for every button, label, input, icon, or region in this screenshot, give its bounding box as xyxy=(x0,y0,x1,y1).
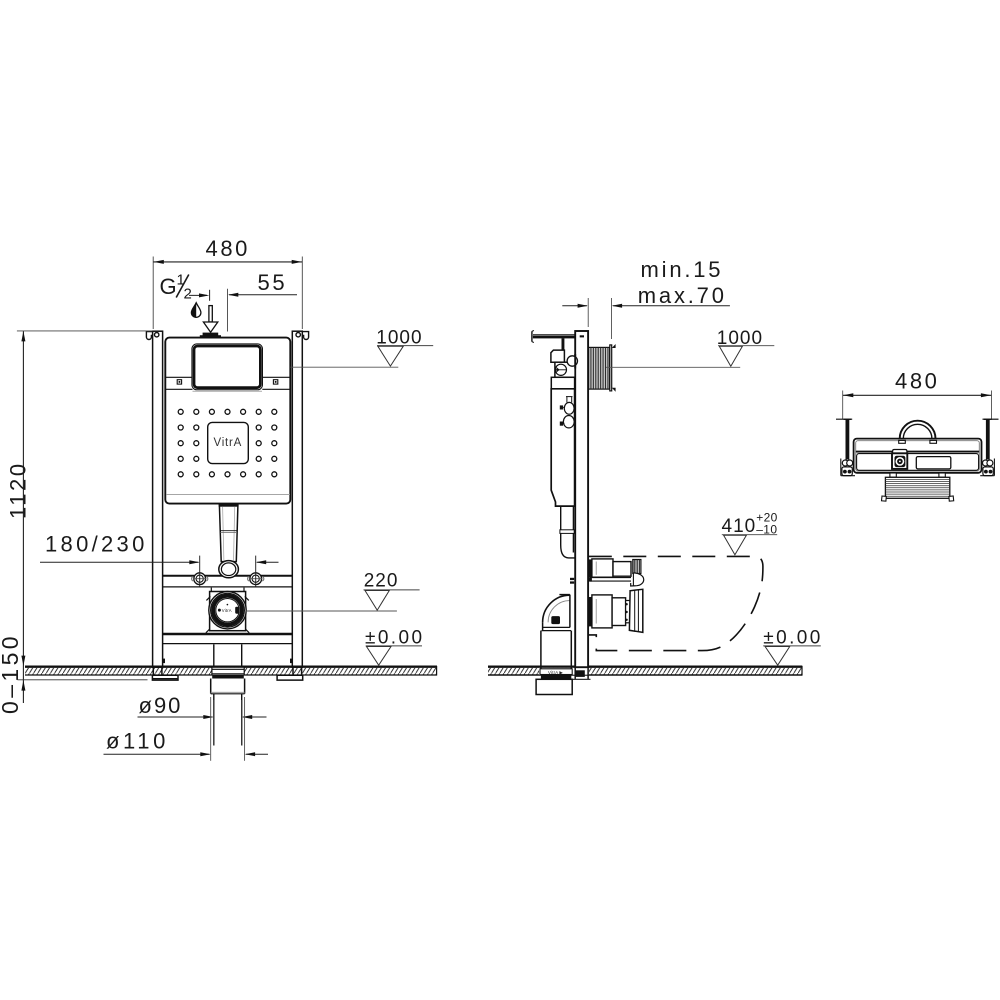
svg-text:410: 410 xyxy=(722,516,757,537)
svg-text:ø90: ø90 xyxy=(139,693,183,718)
svg-text:480: 480 xyxy=(895,368,940,393)
svg-text:max.70: max.70 xyxy=(638,283,727,308)
svg-text:VitrA: VitrA xyxy=(222,608,232,613)
svg-text:1120: 1120 xyxy=(6,461,31,519)
svg-text:55: 55 xyxy=(258,270,288,295)
svg-text:0–150: 0–150 xyxy=(0,633,23,714)
svg-text:min.15: min.15 xyxy=(641,257,724,282)
svg-text:480: 480 xyxy=(206,236,251,261)
svg-text:–10: –10 xyxy=(756,522,777,536)
svg-text:2: 2 xyxy=(184,286,192,303)
svg-text:180/230: 180/230 xyxy=(45,532,148,557)
svg-text:±0.00: ±0.00 xyxy=(365,627,424,648)
svg-text:VitrA ▶: VitrA ▶ xyxy=(548,670,563,675)
svg-text:220: 220 xyxy=(364,571,399,592)
svg-text:VitrA: VitrA xyxy=(213,437,242,449)
svg-text:ø110: ø110 xyxy=(106,729,169,754)
